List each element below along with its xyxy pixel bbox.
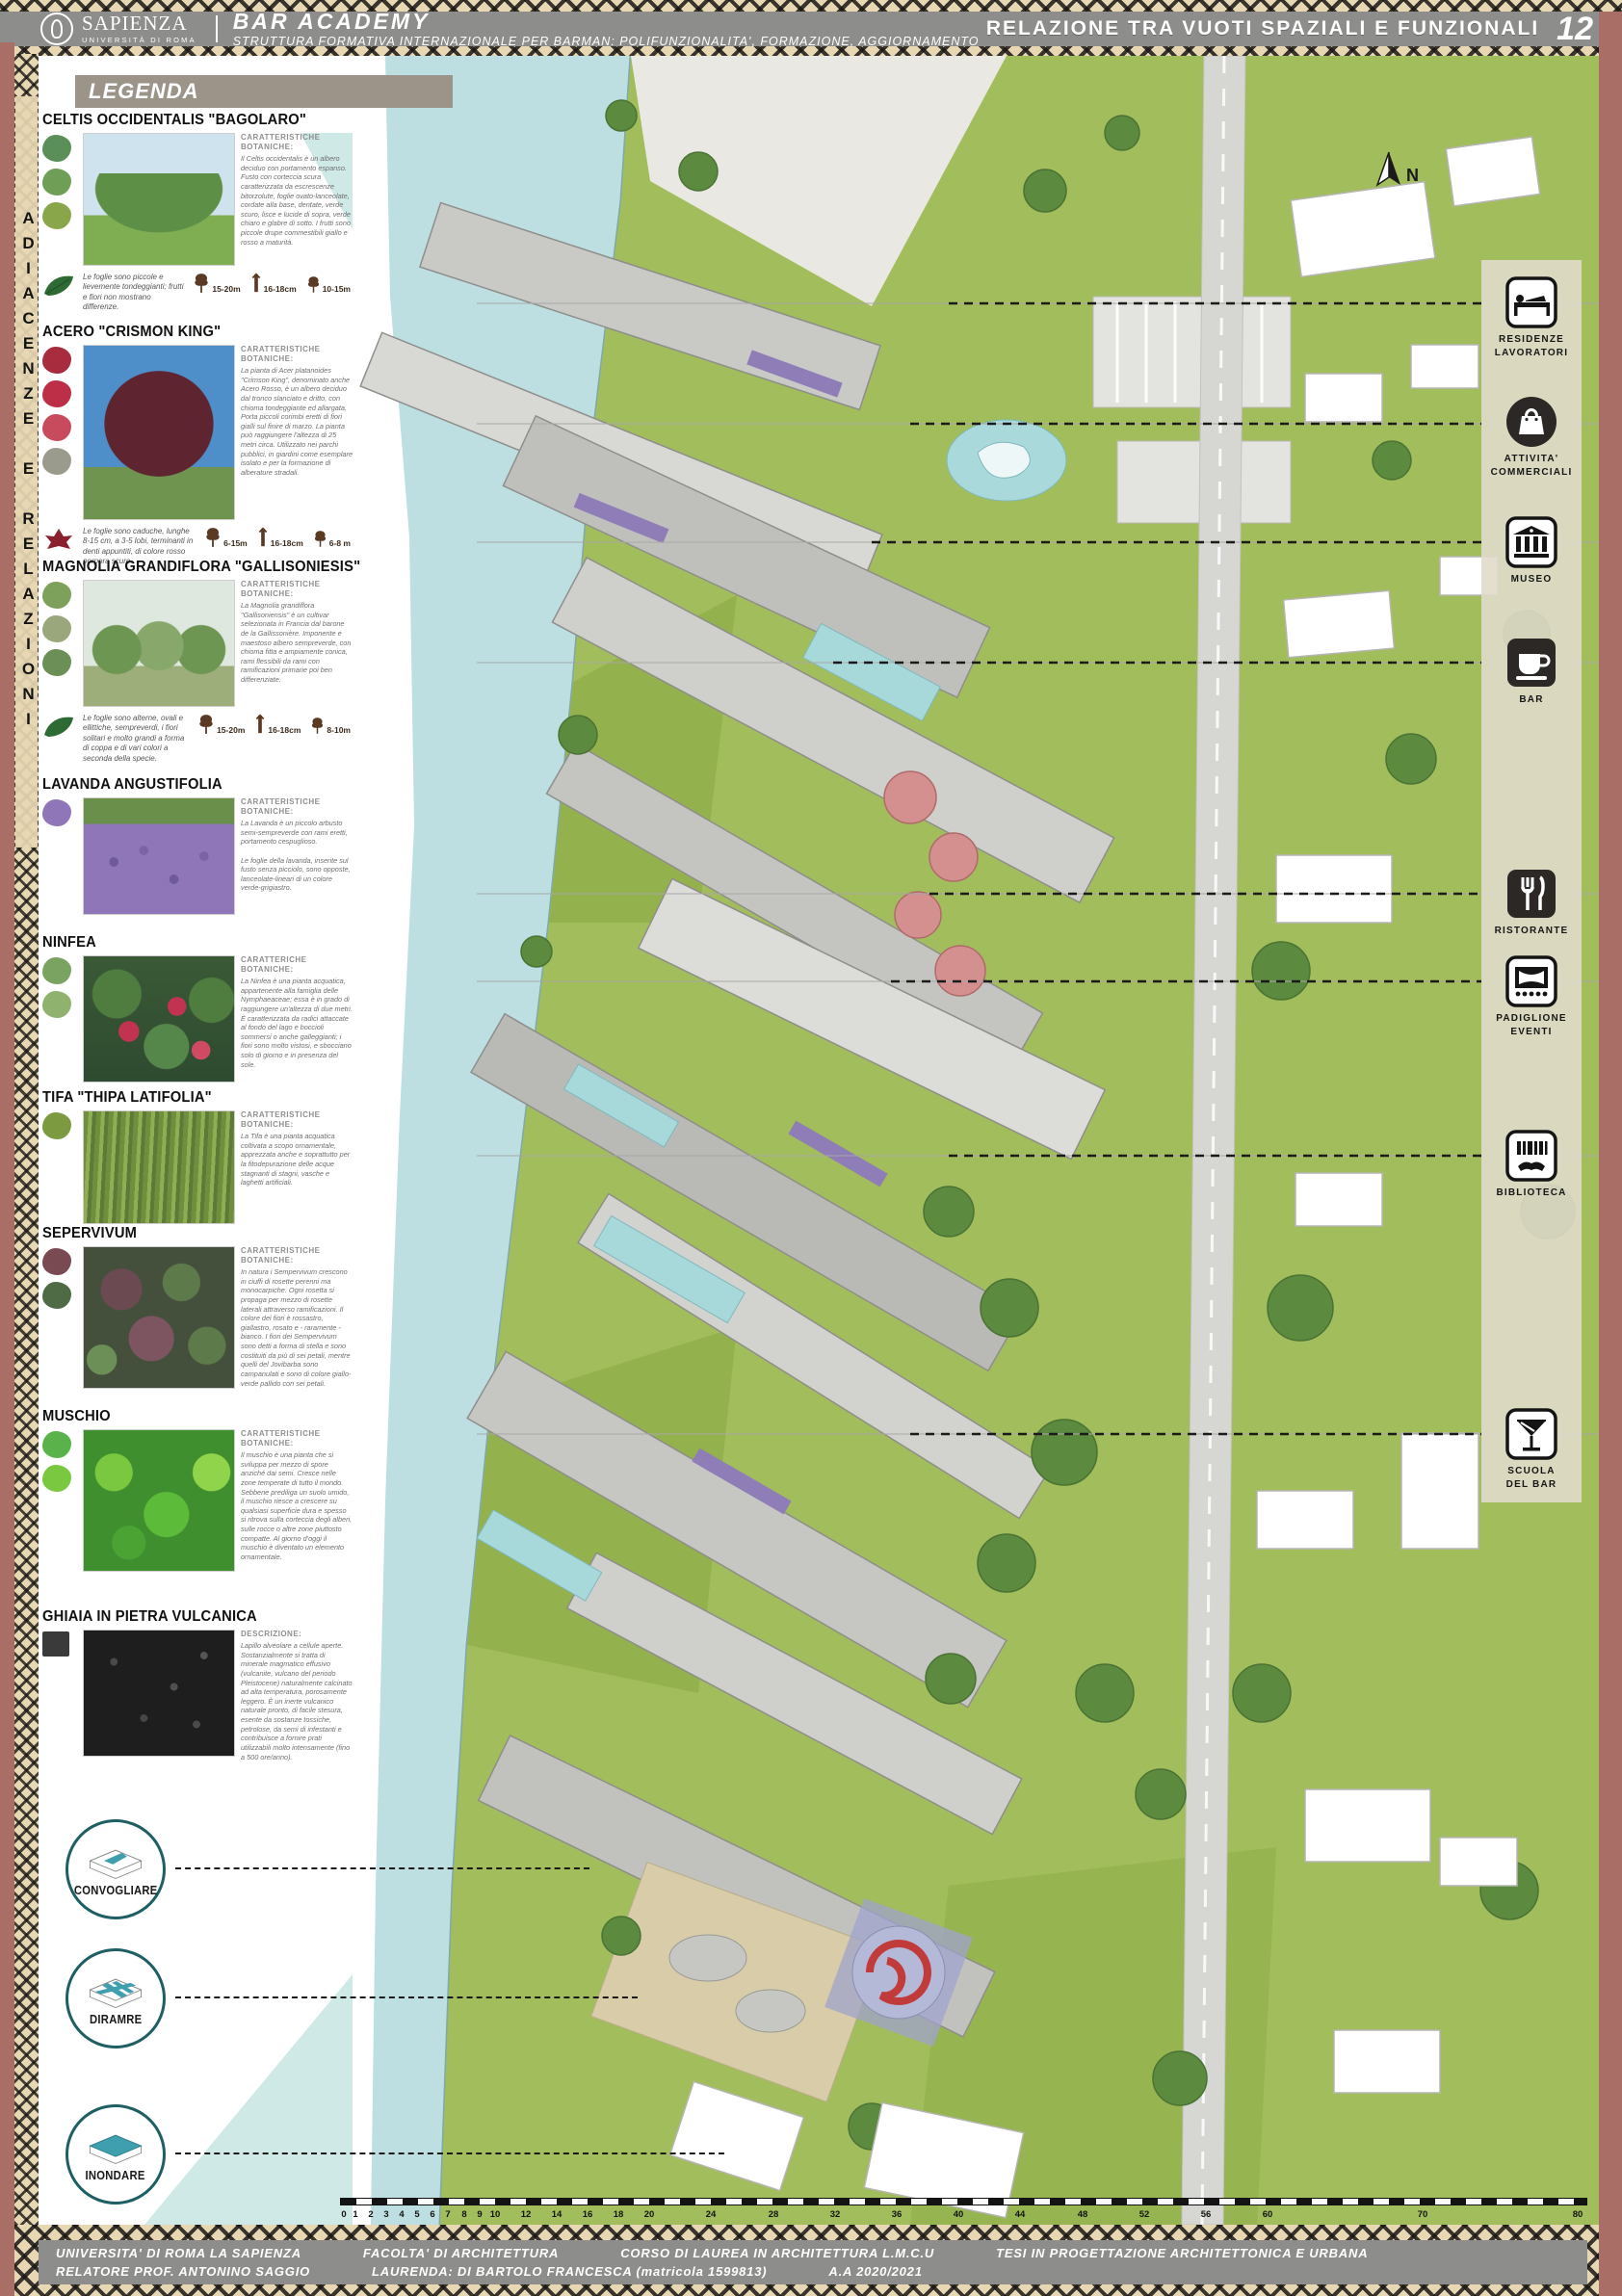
entry-description: La pianta di Acer platanoides "Crimson K… — [241, 366, 353, 478]
scale-tick: 10 — [490, 2209, 501, 2220]
strategy-leader-line — [175, 1996, 638, 1998]
function-bar: BAR — [1477, 637, 1586, 707]
size-tree-icon: 8-10m — [310, 717, 351, 735]
plant-swatches — [42, 797, 77, 915]
footer-faculty: FACOLTA' DI ARCHITETTURA — [363, 2244, 559, 2263]
legend-entry-sepervivum: SEPERVIVUM CARATTERISTICHE BOTANICHE: In… — [42, 1225, 353, 1389]
leaf-icon — [42, 527, 75, 552]
header-band: SAPIENZA UNIVERSITÀ DI ROMA BAR ACADEMY … — [0, 12, 1622, 46]
diramare-icon — [82, 1970, 149, 2013]
entry-photo — [83, 1246, 235, 1389]
scale-tick: 32 — [830, 2209, 841, 2220]
entry-name: MUSCHIO — [42, 1408, 327, 1425]
section-label: DESCRIZIONE: — [241, 1630, 353, 1639]
inondare-icon — [82, 2126, 149, 2169]
scale-tick: 24 — [706, 2209, 717, 2220]
scale-tick: 12 — [521, 2209, 532, 2220]
strategy-convogliare: CONVOGLIARE — [65, 1819, 166, 1919]
entry-name: CELTIS OCCIDENTALIS "BAGOLARO" — [42, 112, 327, 129]
section-label: CARATTERICHE BOTANICHE: — [241, 955, 353, 975]
shopping-bag-icon — [1505, 396, 1557, 448]
entry-name: GHIAIA IN PIETRA VULCANICA — [42, 1608, 327, 1626]
size-trunk-icon: 16-18cm — [250, 273, 297, 294]
function-residenze: RESIDENZE LAVORATORI — [1477, 276, 1586, 359]
scale-bar-strip — [340, 2198, 1587, 2205]
martini-icon — [1505, 1408, 1557, 1460]
sapienza-subtitle: UNIVERSITÀ DI ROMA — [82, 36, 196, 44]
function-museo: MUSEO — [1477, 516, 1586, 587]
scale-tick: 36 — [892, 2209, 903, 2220]
museum-icon — [1505, 516, 1557, 568]
scale-tick: 2 — [368, 2209, 373, 2220]
size-trunk-icon: 16-18cm — [257, 527, 303, 548]
entry-photo — [83, 797, 235, 915]
scale-tick: 7 — [445, 2209, 450, 2220]
scale-tick: 48 — [1078, 2209, 1088, 2220]
entry-description: Il Celtis occidentalis è un albero decid… — [241, 154, 353, 247]
project-subtitle: STRUTTURA FORMATIVA INTERNAZIONALE PER B… — [233, 35, 980, 48]
legend-entry-celtis: CELTIS OCCIDENTALIS "BAGOLARO" CARATTERI… — [42, 112, 353, 313]
scale-tick: 5 — [414, 2209, 419, 2220]
size-tree-icon: 10-15m — [306, 275, 351, 294]
plant-swatches — [42, 1429, 77, 1572]
books-icon — [1505, 1130, 1557, 1182]
footer-year: A.A 2020/2021 — [828, 2262, 922, 2282]
plant-swatches — [42, 1630, 77, 1761]
scale-tick: 44 — [1015, 2209, 1026, 2220]
section-label: CARATTERISTICHE BOTANICHE: — [241, 345, 353, 364]
plant-swatches — [42, 1246, 77, 1389]
size-tree-icon: 15-20m — [197, 714, 245, 735]
entry-name: TIFA "THIPA LATIFOLIA" — [42, 1089, 327, 1107]
sapienza-logo: SAPIENZA UNIVERSITÀ DI ROMA — [40, 13, 196, 45]
size-tree-icon: 6-8 m — [313, 530, 351, 548]
entry-name: SEPERVIVUM — [42, 1225, 327, 1242]
legend-entry-muschio: MUSCHIO CARATTERISTICHE BOTANICHE: Il mu… — [42, 1408, 353, 1572]
entry-name: MAGNOLIA GRANDIFLORA "GALLISONIESIS" — [42, 559, 327, 576]
scale-tick: 6 — [430, 2209, 434, 2220]
legend-title: LEGENDA — [89, 79, 199, 104]
legend-entry-lavanda: LAVANDA ANGUSTIFOLIA CARATTERISTICHE BOT… — [42, 776, 353, 915]
entry-photo — [83, 580, 235, 707]
section-label: CARATTERISTICHE BOTANICHE: — [241, 1246, 353, 1265]
scale-tick: 1 — [353, 2209, 357, 2220]
section-label: CARATTERISTICHE BOTANICHE: — [241, 1110, 353, 1130]
strategy-leader-line — [175, 2152, 724, 2154]
section-label: CARATTERISTICHE BOTANICHE: — [241, 1429, 353, 1448]
plant-swatches — [42, 955, 77, 1083]
function-ristorante: RISTORANTE — [1477, 868, 1586, 938]
entry-description: La Tifa è una pianta acquatica coltivata… — [241, 1132, 353, 1187]
entry-photo — [83, 955, 235, 1083]
entry-description: Lapillo alveolare a cellule aperte. Sost… — [241, 1641, 353, 1761]
section-label: CARATTERISTICHE BOTANICHE: — [241, 133, 353, 152]
board-number: 12 — [1557, 11, 1593, 48]
side-pattern-strip: ADIACENZE E RELAZIONI — [14, 54, 39, 2225]
function-biblioteca: BIBLIOTECA — [1477, 1130, 1586, 1200]
scale-tick: 18 — [614, 2209, 624, 2220]
size-tree-icon: 6-15m — [204, 527, 248, 548]
entry-note: Le foglie sono alterne, ovali e ellittic… — [83, 714, 190, 764]
scale-tick: 8 — [461, 2209, 466, 2220]
plant-swatches — [42, 1110, 77, 1224]
sapienza-logo-icon — [40, 13, 73, 45]
scale-tick: 3 — [383, 2209, 388, 2220]
leaf-icon — [42, 273, 75, 298]
scale-tick: 70 — [1418, 2209, 1428, 2220]
header-divider — [216, 15, 218, 42]
fork-knife-icon — [1505, 868, 1557, 920]
function-attivita-commerciali: ATTIVITA' COMMERCIALI — [1477, 396, 1586, 479]
side-vertical-title: ADIACENZE E RELAZIONI — [15, 96, 38, 848]
map-scale-bar: 0 1 2 3 4 5 6 7 8 9 10 12 14 16 18 20 24… — [340, 2198, 1587, 2231]
footer-band: UNIVERSITA' DI ROMA LA SAPIENZA FACOLTA'… — [39, 2240, 1587, 2284]
entry-description: La Ninfea è una pianta acquatica, appart… — [241, 977, 353, 1069]
scale-tick: 60 — [1263, 2209, 1273, 2220]
legend-entry-ghiaia: GHIAIA IN PIETRA VULCANICA DESCRIZIONE: … — [42, 1608, 353, 1761]
entry-description: La Lavanda è un piccolo arbusto semi-sem… — [241, 819, 353, 893]
scale-tick: 0 — [341, 2209, 346, 2220]
scale-tick: 16 — [583, 2209, 593, 2220]
entry-photo — [83, 345, 235, 520]
strategy-diramare: DIRAMRE — [65, 1948, 166, 2048]
function-scuola-del-bar: SCUOLA DEL BAR — [1477, 1408, 1586, 1491]
entry-name: LAVANDA ANGUSTIFOLIA — [42, 776, 327, 794]
masterplan-map: N — [332, 56, 1599, 2225]
convogliare-icon — [82, 1841, 149, 1884]
entry-photo — [83, 133, 235, 266]
entry-photo — [83, 1110, 235, 1224]
entry-description: Il muschio è una pianta che si sviluppa … — [241, 1450, 353, 1562]
scale-tick: 28 — [769, 2209, 779, 2220]
plant-swatches — [42, 345, 77, 520]
scale-tick: 20 — [644, 2209, 655, 2220]
scale-tick: 80 — [1573, 2209, 1583, 2220]
footer-university: UNIVERSITA' DI ROMA LA SAPIENZA — [56, 2244, 301, 2263]
right-red-strip — [1599, 12, 1622, 2296]
board-title: RELAZIONE TRA VUOTI SPAZIALI E FUNZIONAL… — [986, 17, 1539, 40]
legend-entry-magnolia: MAGNOLIA GRANDIFLORA "GALLISONIESIS" CAR… — [42, 559, 353, 764]
entry-description: In natura i Sempervivum crescono in ciuf… — [241, 1267, 353, 1388]
section-label: CARATTERISTICHE BOTANICHE: — [241, 797, 353, 817]
stage-icon — [1505, 955, 1557, 1007]
footer-thesis: TESI IN PROGETTAZIONE ARCHITETTONICA E U… — [996, 2244, 1368, 2263]
entry-photo — [83, 1630, 235, 1757]
entry-name: ACERO "CRISMON KING" — [42, 324, 327, 341]
legend-title-bar: LEGENDA — [75, 75, 453, 108]
bed-icon — [1505, 276, 1557, 328]
footer-course: CORSO DI LAUREA IN ARCHITETTURA L.M.C.U — [620, 2244, 934, 2263]
strategy-leader-line — [175, 1867, 589, 1869]
legend-entry-ninfea: NINFEA CARATTERICHE BOTANICHE: La Ninfea… — [42, 934, 353, 1083]
legend-entry-tifa: TIFA "THIPA LATIFOLIA" CARATTERISTICHE B… — [42, 1089, 353, 1224]
footer-student: LAURENDA: DI BARTOLO FRANCESCA (matricol… — [372, 2262, 767, 2282]
function-padiglione-eventi: PADIGLIONE EVENTI — [1477, 955, 1586, 1038]
scale-tick: 52 — [1139, 2209, 1150, 2220]
scale-tick: 9 — [477, 2209, 482, 2220]
strategy-inondare: INONDARE — [65, 2104, 166, 2205]
plant-swatches — [42, 580, 77, 707]
legend-entry-acero: ACERO "CRISMON KING" CARATTERISTICHE BOT… — [42, 324, 353, 567]
section-label: CARATTERISTICHE BOTANICHE: — [241, 580, 353, 599]
scale-tick: 4 — [399, 2209, 404, 2220]
size-trunk-icon: 16-18cm — [254, 714, 301, 735]
entry-description: La Magnolia grandiflora "Gallisoniensis"… — [241, 601, 353, 685]
size-tree-icon: 15-20m — [193, 273, 240, 294]
svg-text:N: N — [1406, 166, 1419, 185]
footer-advisor: RELATORE PROF. ANTONINO SAGGIO — [56, 2262, 310, 2282]
scale-tick: 40 — [954, 2209, 964, 2220]
scale-tick: 56 — [1201, 2209, 1212, 2220]
sapienza-title: SAPIENZA — [82, 13, 196, 34]
scale-tick: 14 — [552, 2209, 562, 2220]
entry-name: NINFEA — [42, 934, 327, 952]
leaf-icon — [42, 714, 75, 739]
entry-note: Le foglie sono piccole e lievemente tond… — [83, 273, 185, 313]
coffee-cup-icon — [1505, 637, 1557, 689]
left-red-strip — [0, 42, 14, 2296]
project-title: BAR ACADEMY — [233, 11, 980, 33]
plant-swatches — [42, 133, 77, 266]
entry-photo — [83, 1429, 235, 1572]
